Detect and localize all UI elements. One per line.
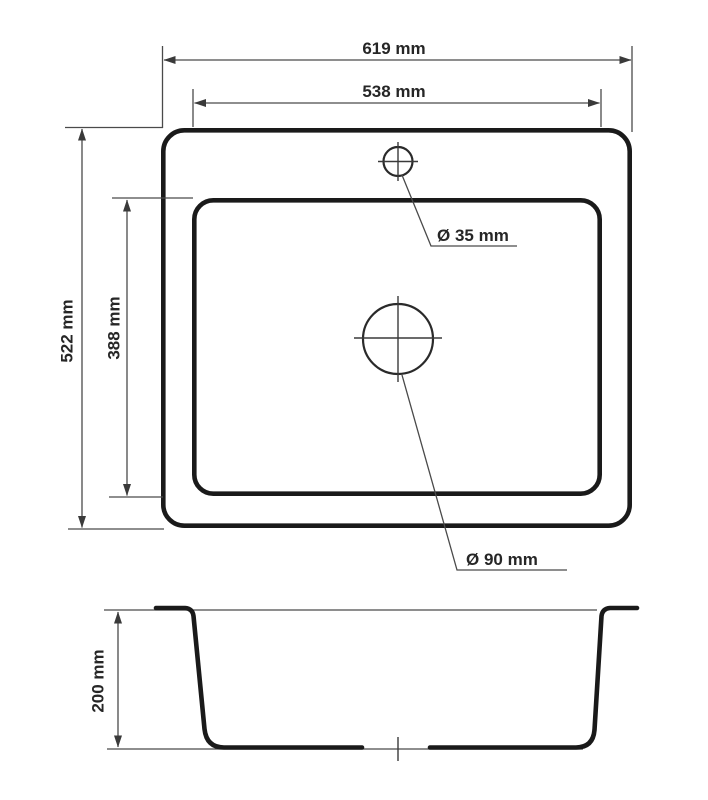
inner-depth-label: 388 mm: [105, 296, 124, 359]
outer-depth-label: 522 mm: [58, 299, 77, 362]
bowl-depth-label: 200 mm: [89, 649, 108, 712]
faucet-hole-diameter-label: Ø 35 mm: [437, 226, 509, 245]
drain-hole-diameter-label: Ø 90 mm: [466, 550, 538, 569]
outer-width-label: 619 mm: [362, 39, 425, 58]
section-view: 200 mm: [89, 608, 638, 761]
technical-drawing-page: Ø 35 mm Ø 90 mm 619 mm 538 mm: [0, 0, 708, 800]
sink-drawing-canvas: Ø 35 mm Ø 90 mm 619 mm 538 mm: [0, 0, 708, 800]
drain-hole-leader-line: [402, 375, 567, 570]
sink-bowl-outline: [194, 200, 599, 493]
drain-hole: Ø 90 mm: [354, 296, 567, 570]
sink-outer-rim-outline: [163, 130, 629, 525]
top-view: Ø 35 mm Ø 90 mm 619 mm 538 mm: [58, 39, 633, 570]
faucet-hole: Ø 35 mm: [378, 142, 517, 246]
dimension-inner-depth: 388 mm: [105, 198, 194, 497]
section-profile-left: [156, 608, 362, 748]
inner-width-label: 538 mm: [362, 82, 425, 101]
dimension-inner-width: 538 mm: [193, 82, 601, 127]
dimension-bowl-depth: 200 mm: [89, 612, 119, 747]
section-profile-right: [430, 608, 637, 748]
